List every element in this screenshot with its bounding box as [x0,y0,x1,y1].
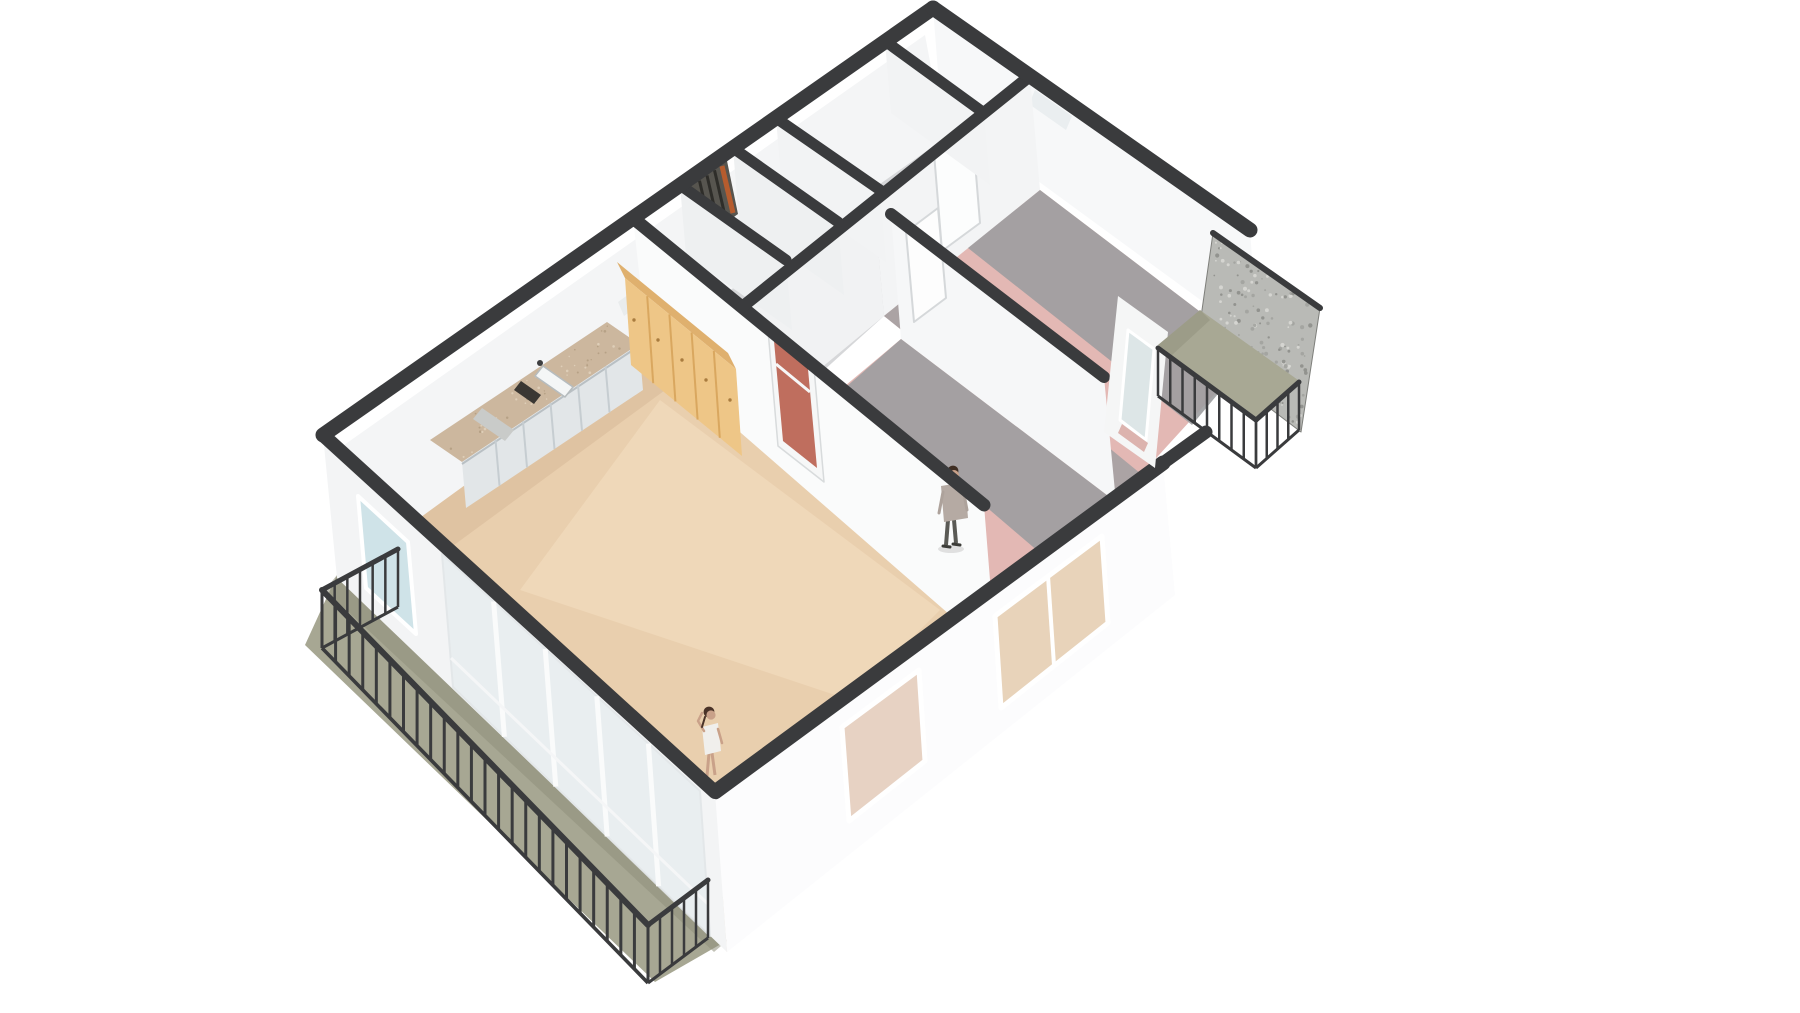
balcony-right-stone-speckles [1268,336,1270,338]
balcony-right-stone-speckles [1213,275,1215,277]
balcony-right-stone-speckles [1220,318,1223,321]
balcony-right-stone-speckles [1297,346,1300,349]
balcony-right-stone-speckles [1289,321,1293,325]
kitchen-counter-speckles [597,346,599,348]
kitchen-counter-speckles [587,359,589,361]
balcony-right-stone-speckles [1227,263,1230,266]
kitchen-counter-speckles [511,392,513,394]
balcony-right-stone-speckles [1264,289,1266,291]
kitchen-counter-speckles [618,347,620,349]
woman-head [706,710,715,719]
balcony-right-stone-speckles [1221,259,1225,263]
balcony-right-stone-speckles [1282,402,1284,404]
balcony-right-stone-speckles [1261,316,1264,319]
balcony-right-stone-speckles [1260,341,1264,345]
balcony-right-stone-speckles [1265,308,1269,312]
balcony-right-stone-speckles [1301,338,1304,341]
man-leg-right [954,520,956,543]
balcony-right-stone-speckles [1250,281,1253,284]
balcony-right-stone-speckles [1308,323,1312,327]
balcony-right-stone-speckles [1250,270,1253,273]
kitchen-counter-speckles [604,330,607,333]
balcony-right-stone-speckles [1287,350,1290,353]
kitchen-counter-speckles [574,365,576,367]
balcony-right-stone-speckles [1284,346,1286,348]
kitchen-counter-speckles [546,398,548,400]
balcony-right-stone-speckles [1278,348,1281,351]
kitchen-counter-speckles [450,448,452,450]
kitchen-faucet [537,360,543,366]
balcony-right-stone-speckles [1269,293,1272,296]
balcony-right-stone-speckles [1234,315,1236,317]
kitchen-counter-speckles [586,365,588,367]
kitchen-counter-speckles [481,431,483,433]
balcony-right-stone-speckles [1300,405,1304,409]
balcony-right-stone-speckles [1280,343,1284,347]
balcony-right-stone-speckles [1251,327,1255,331]
kitchen-counter-speckles [601,330,603,332]
kitchen-counter-speckles [544,393,546,395]
balcony-right-stone-speckles [1300,325,1304,329]
balcony-right-stone-speckles [1257,270,1259,272]
balcony-right-stone-speckles [1219,300,1222,303]
kitchen-counter-speckles [591,359,592,360]
man-shoe-left [943,546,950,547]
balcony-right-stone-speckles [1234,321,1238,325]
balcony-right-stone-speckles [1259,322,1261,324]
balcony-right-stone-speckles [1241,280,1245,284]
kitchen-counter-speckles [561,366,563,368]
balcony-right-stone-speckles [1271,317,1274,320]
kitchen-counter-speckles [471,451,473,453]
kitchen-counter-speckles [463,456,465,458]
balcony-right-stone-speckles [1245,310,1249,314]
balcony-right-stone-speckles [1230,315,1232,317]
balcony-right-stone-speckles [1262,346,1265,349]
kitchen-counter-speckles [525,402,527,404]
balcony-right-stone-speckles [1238,334,1240,336]
wardrobe-handles [680,358,683,361]
man-leg-left [946,520,948,545]
balcony-right-stone-speckles [1281,296,1284,299]
balcony-right-stone-speckles [1215,253,1219,257]
floorplan-svg [0,0,1800,1013]
kitchen-counter-speckles [568,356,569,357]
kitchen-counter-speckles [475,413,477,415]
kitchen-counter-speckles [612,345,615,348]
balcony-right-stone-speckles [1304,371,1308,375]
wardrobe-handles [704,378,707,381]
floorplan-3d-render [0,0,1800,1013]
balcony-right-stone-speckles [1255,281,1258,284]
balcony-right-stone-speckles [1215,260,1217,262]
balcony-right-stone-speckles [1253,305,1255,307]
kitchen-counter-speckles [544,390,545,391]
balcony-right-stone-speckles [1251,294,1254,297]
balcony-right-stone-speckles [1304,355,1306,357]
balcony-right-stone-speckles [1257,308,1261,312]
kitchen-counter-speckles [537,386,540,389]
balcony-right-stone-speckles [1286,347,1289,350]
balcony-right-stone-speckles [1247,289,1250,292]
balcony-right-stone-speckles [1284,364,1288,368]
balcony-right-stone-speckles [1244,295,1247,298]
wardrobe-handles [632,318,635,321]
balcony-right-stone-speckles [1226,321,1229,324]
balcony-right-stone-speckles [1237,274,1239,276]
kitchen-counter-speckles [479,427,481,429]
balcony-right-stone-speckles [1228,312,1231,315]
balcony-right-door [1120,330,1154,440]
balcony-right-stone-speckles [1237,291,1241,295]
balcony-right-stone-speckles [1289,365,1291,367]
kitchen-counter-speckles [584,367,586,369]
wardrobe-handles [656,338,659,341]
balcony-right-stone-speckles [1215,242,1217,244]
balcony-right-stone-speckles [1275,293,1277,295]
kitchen-counter-speckles [566,370,569,373]
kitchen-counter-speckles [515,398,517,400]
balcony-right-stone-speckles [1281,404,1283,406]
balcony-right-stone-speckles [1220,247,1222,249]
balcony-right-stone-speckles [1227,294,1231,298]
kitchen-counter-speckles [605,352,607,354]
balcony-right-stone-speckles [1219,285,1223,289]
woman-leg-left [707,753,709,776]
balcony-right-stone-speckles [1229,289,1232,292]
balcony-right-stone-speckles [1298,344,1300,346]
balcony-right-stone-speckles [1301,352,1305,356]
balcony-right-stone-speckles [1275,361,1278,364]
balcony-right-stone-speckles [1233,261,1235,263]
balcony-right-stone-speckles [1302,394,1305,397]
balcony-right-stone-speckles [1284,295,1287,298]
man-shoe-right [953,544,960,545]
kitchen-counter-speckles [607,325,608,326]
balcony-right-stone-speckles [1287,326,1289,328]
balcony-right-stone-speckles [1237,261,1241,265]
kitchen-counter-speckles [566,374,567,375]
kitchen-counter-speckles [577,371,579,373]
kitchen-counter-speckles [530,403,532,405]
balcony-right-stone-speckles [1261,278,1263,280]
kitchen-counter-speckles [526,380,527,381]
balcony-right-stone-speckles [1243,287,1247,291]
balcony-right-stone-speckles [1253,274,1257,278]
balcony-right-stone-speckles [1241,293,1244,296]
balcony-right-stone-speckles [1264,352,1268,356]
balcony-right-stone-speckles [1253,324,1256,327]
balcony-right-stone-speckles [1245,264,1249,268]
balcony-right-stone-speckles [1282,360,1286,364]
kitchen-counter-speckles [597,343,600,346]
kitchen-counter-speckles [598,352,600,354]
kitchen-counter-speckles [506,417,508,419]
kitchen-counter-speckles [574,349,576,351]
wardrobe-handles [728,398,731,401]
balcony-right-stone-speckles [1300,364,1304,368]
balcony-right-stone-speckles [1220,293,1223,296]
kitchen-counter-speckles [588,371,591,374]
kitchen-counter-speckles [484,428,487,431]
balcony-right-stone-speckles [1266,322,1269,325]
balcony-right-stone-speckles [1233,303,1236,306]
balcony-right-stone-speckles [1291,420,1294,423]
